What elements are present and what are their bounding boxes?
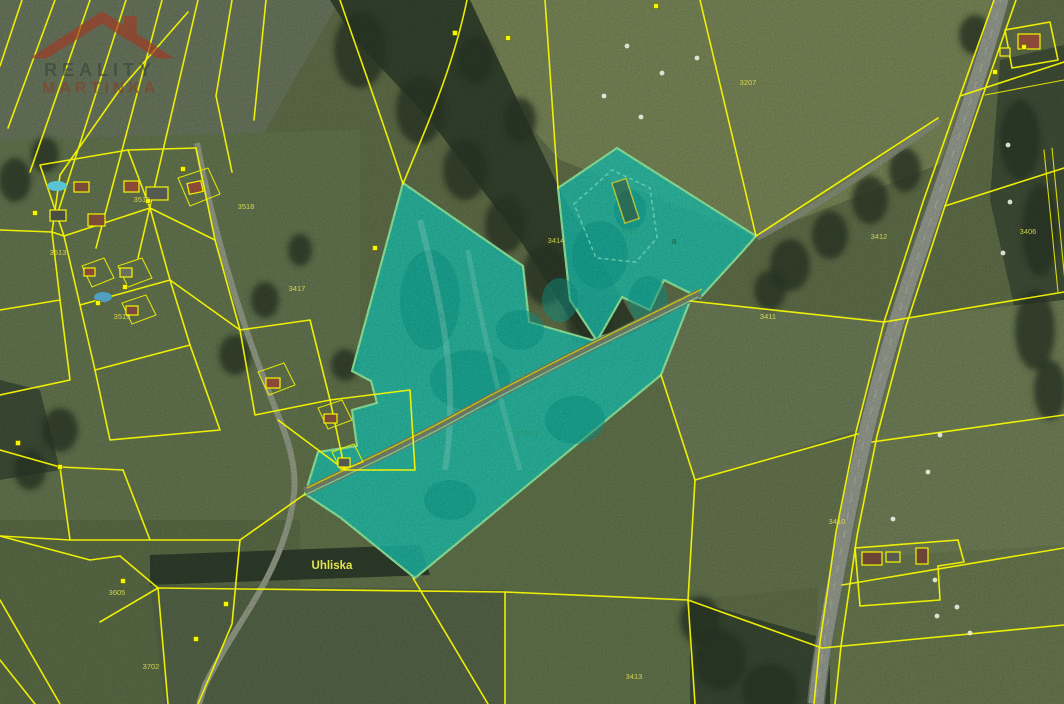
- swimming-pool: [47, 181, 67, 191]
- hay-bale-marker: [660, 71, 665, 76]
- building-dot-marker: [373, 246, 378, 251]
- highlighted-parcel-number-label: 3713/1: [516, 429, 539, 438]
- parcel-number-label: 3410: [829, 517, 846, 526]
- place-name-label: Uhliska: [312, 560, 354, 572]
- building-dot-marker: [224, 602, 229, 607]
- hay-bale-marker: [625, 44, 630, 49]
- parcel-number-label: 3412: [871, 232, 888, 241]
- parcel-number-label: 3518: [238, 202, 255, 211]
- building-dot-marker: [16, 441, 21, 446]
- hay-bale-marker: [1001, 251, 1006, 256]
- hay-bale-marker: [602, 94, 607, 99]
- parcel-number-label: 3417: [289, 284, 306, 293]
- parcel-number-label: 3414: [548, 236, 565, 245]
- parcel-number-label: 3406: [1020, 227, 1037, 236]
- parcel-number-label: 3413: [626, 672, 643, 681]
- parcel-number-label: 3513: [50, 248, 67, 257]
- hay-bale-marker: [968, 631, 973, 636]
- hay-bale-marker: [1006, 143, 1011, 148]
- building-dot-marker: [121, 579, 126, 584]
- hay-bale-marker: [695, 56, 700, 61]
- parcel-number-label: 3515: [134, 195, 151, 204]
- highlighted-parcel-number-label: 3713: [439, 311, 456, 320]
- building-dot-marker: [58, 465, 63, 470]
- map-canvas[interactable]: 3207341234133414340634103411351535133518…: [0, 0, 1064, 704]
- hay-bale-marker: [933, 578, 938, 583]
- building-dot-marker: [993, 70, 998, 75]
- parcel-number-label: 3605: [109, 588, 126, 597]
- hay-bale-marker: [935, 614, 940, 619]
- parcel-number-label: 3207: [740, 78, 757, 87]
- parcel-number-label: 3519: [114, 312, 131, 321]
- building-dot-marker: [181, 167, 186, 172]
- building-dot-marker: [453, 31, 458, 36]
- highlighted-parcel-number-label: 3712: [621, 227, 638, 236]
- hay-bale-marker: [639, 115, 644, 120]
- building-dot-marker: [654, 4, 659, 9]
- hay-bale-marker: [955, 605, 960, 610]
- parcel-number-label: 3411: [760, 312, 776, 321]
- parcel-number-label: 3702: [143, 662, 160, 671]
- hay-bale-marker: [926, 470, 931, 475]
- building-dot-marker: [506, 36, 511, 41]
- building-dot-marker: [194, 637, 199, 642]
- building-dot-marker: [96, 301, 101, 306]
- hay-bale-marker: [1008, 200, 1013, 205]
- hay-bale-marker: [938, 433, 943, 438]
- building-dot-marker: [123, 285, 128, 290]
- building-dot-marker: [1022, 45, 1027, 50]
- building-dot-marker: [33, 211, 38, 216]
- aerial-map-image: 3207341234133414340634103411351535133518…: [0, 0, 1064, 704]
- hay-bale-marker: [891, 517, 896, 522]
